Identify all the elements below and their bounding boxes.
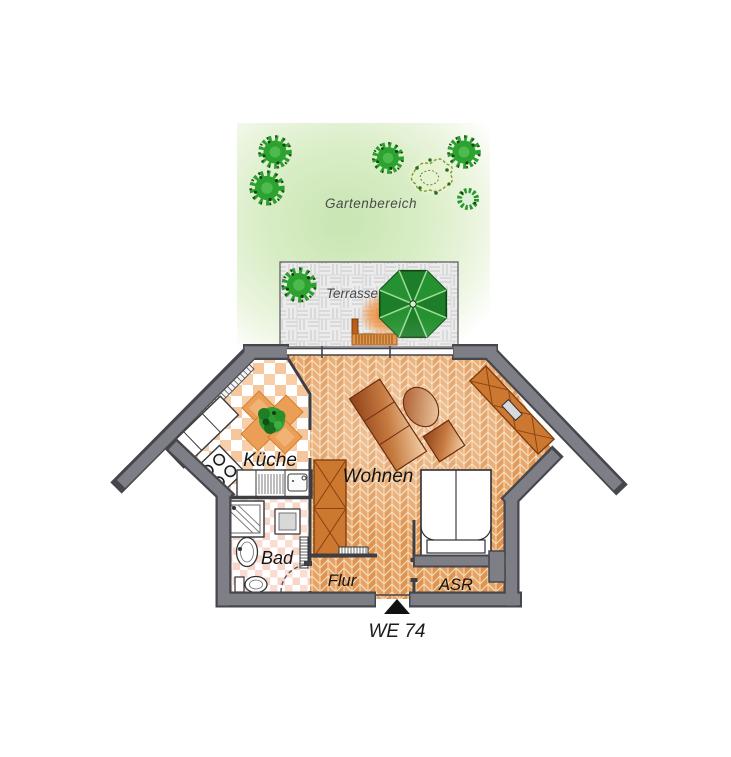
shower-icon <box>227 501 264 537</box>
room-label-flur: Flur <box>328 572 358 590</box>
floorplan-page: Gartenbereich Terrasse Küche Wohnen Bad … <box>0 0 731 757</box>
bed <box>421 470 491 557</box>
room-label-bad: Bad <box>261 548 294 568</box>
asr-door-jamb <box>411 578 418 582</box>
kitchen-counter-row <box>237 470 312 498</box>
room-label-wohnen: Wohnen <box>343 466 414 487</box>
washbasin-icon <box>237 538 258 567</box>
room-label-kueche: Küche <box>243 450 297 471</box>
wall-notch <box>489 551 505 582</box>
entrance-marker <box>384 599 410 614</box>
shrub-ring-icon <box>460 191 477 208</box>
bath-door-jamb <box>304 561 312 566</box>
floorplan-canvas: Gartenbereich Terrasse Küche Wohnen Bad … <box>0 0 731 757</box>
terrace-label: Terrasse <box>326 286 378 301</box>
kitchen-sink-icon <box>288 474 307 491</box>
garden-label: Gartenbereich <box>325 196 417 211</box>
washing-machine-icon <box>275 509 300 534</box>
toilet-icon <box>235 577 267 593</box>
shrub-scribble-icon <box>409 157 455 195</box>
room-label-asr: ASR <box>438 576 473 594</box>
wardrobe <box>314 460 346 557</box>
unit-number-label: WE 74 <box>368 621 425 642</box>
